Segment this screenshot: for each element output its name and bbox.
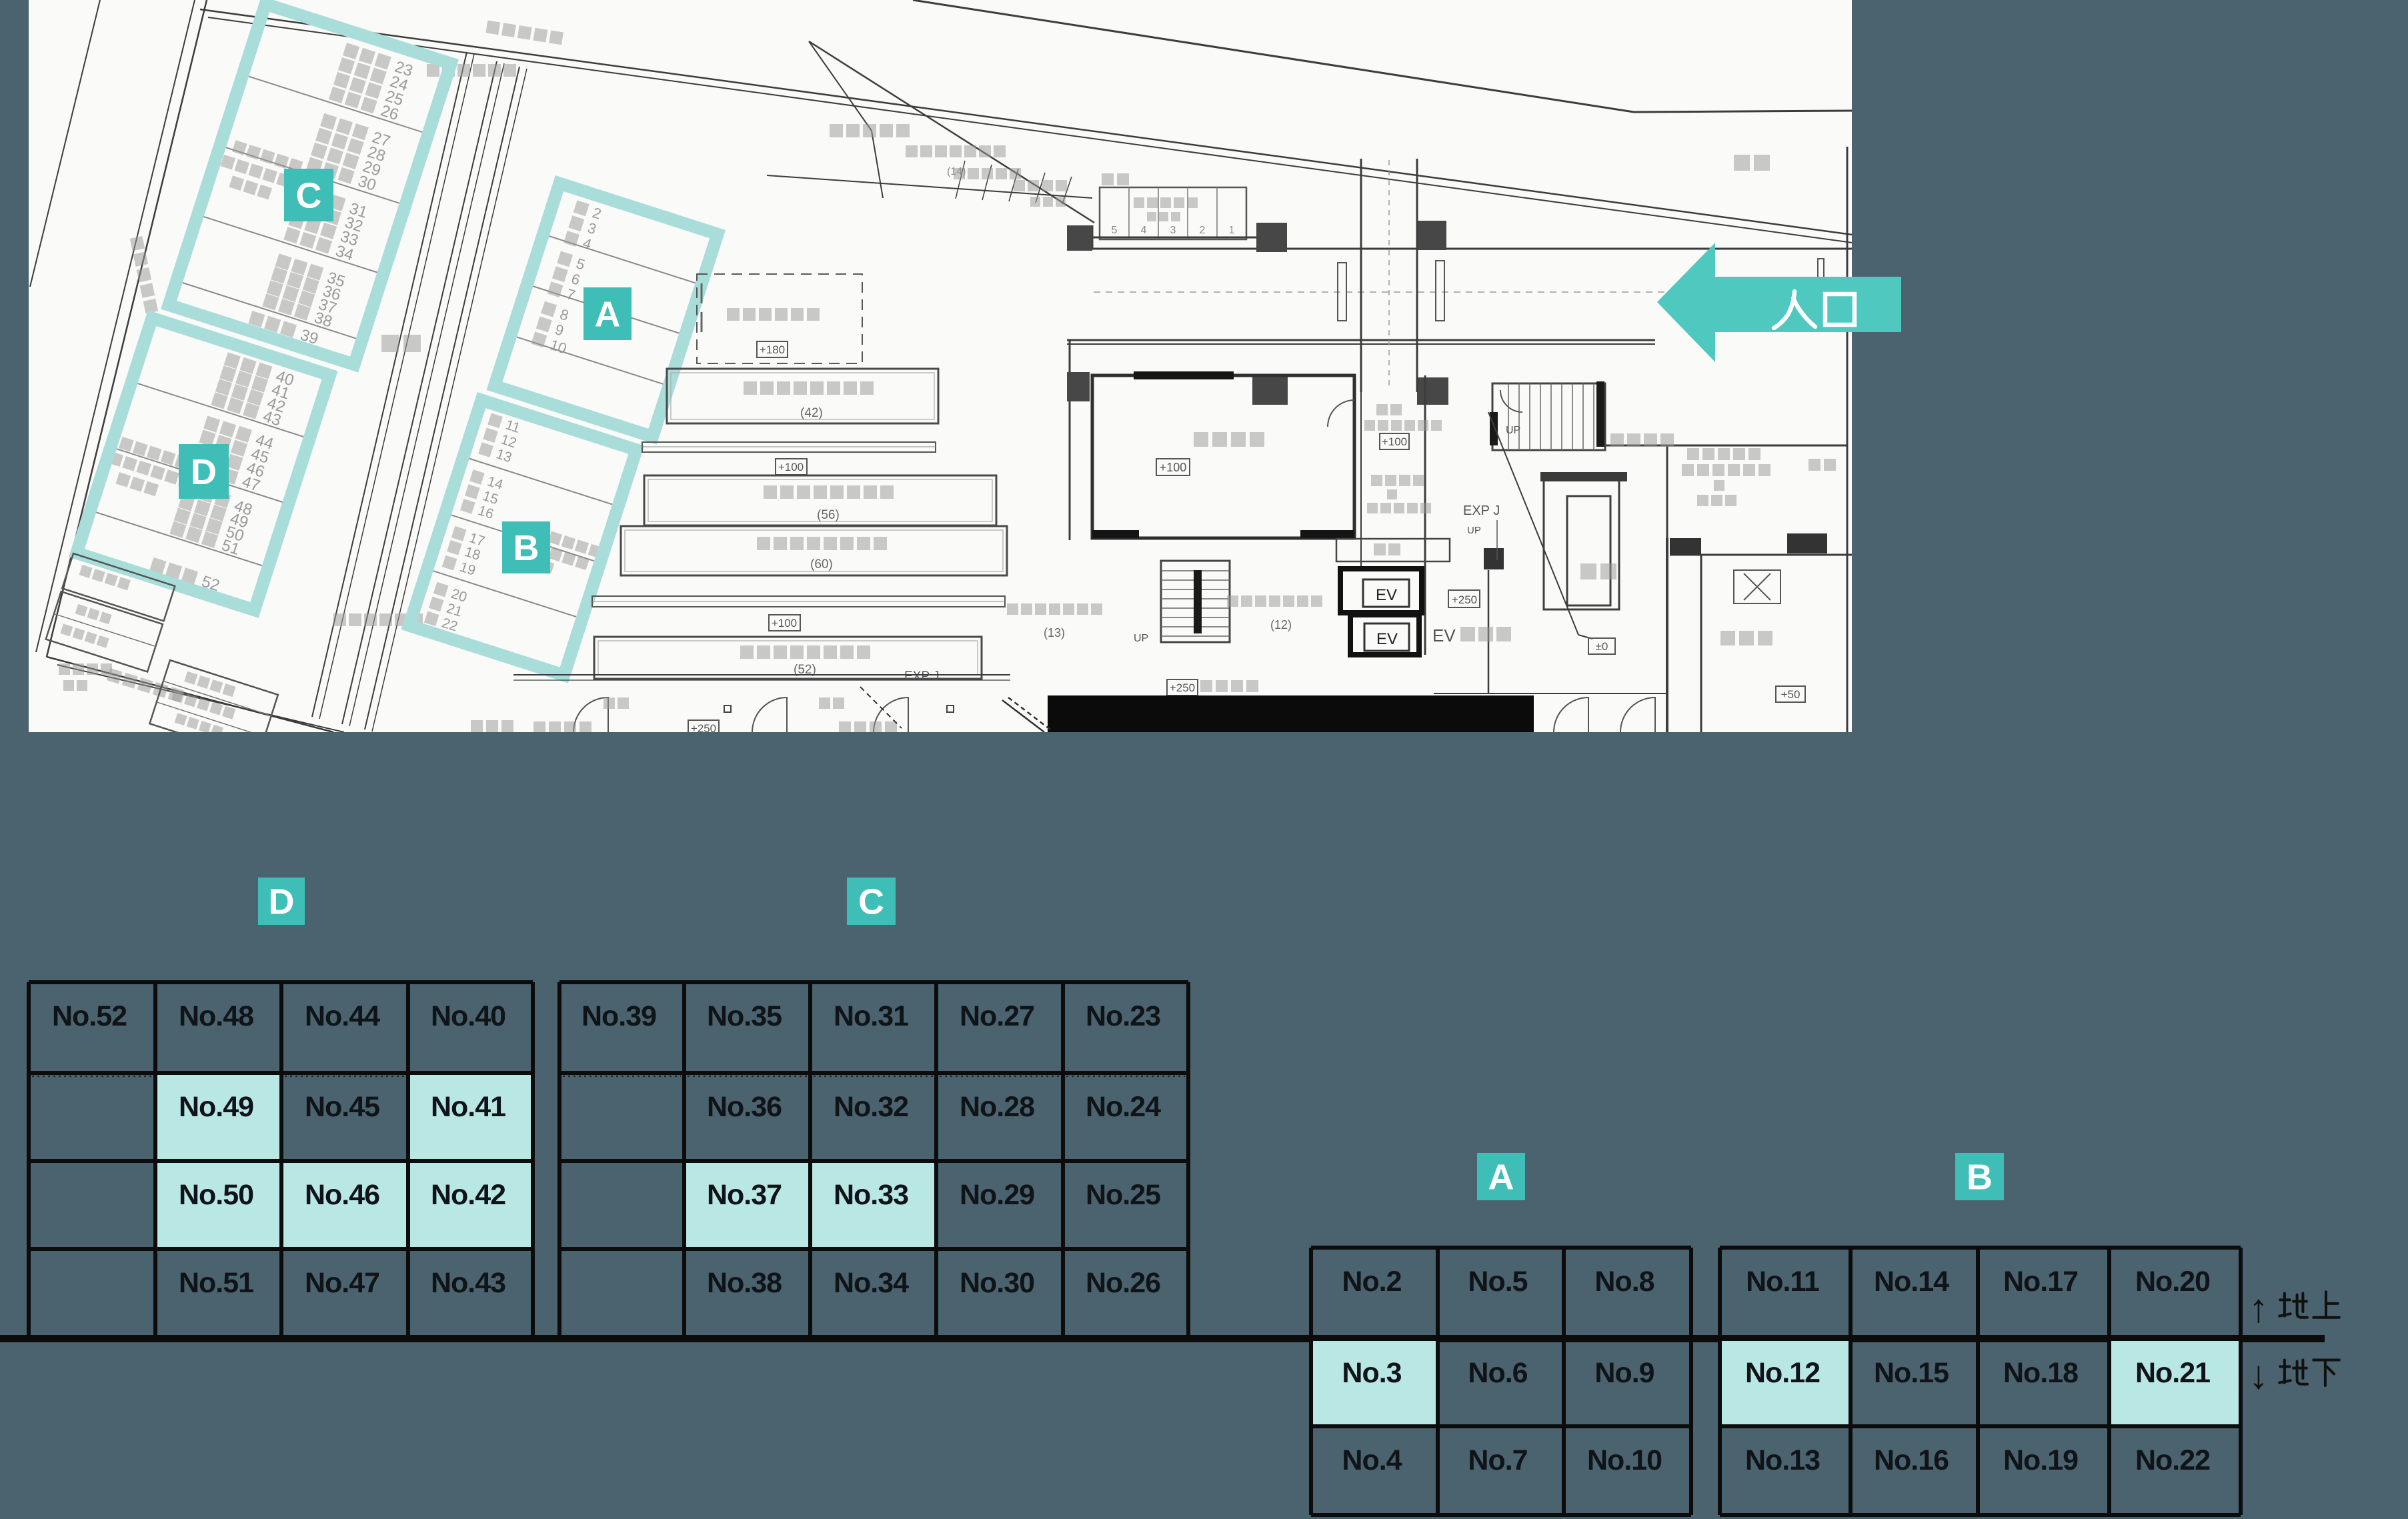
svg-text:(56): (56) xyxy=(817,508,840,522)
svg-text:±0: ±0 xyxy=(1596,640,1608,653)
svg-text:+100: +100 xyxy=(772,617,797,629)
svg-text:No.3: No.3 xyxy=(1342,1357,1401,1389)
svg-text:↓: ↓ xyxy=(2249,1352,2269,1397)
svg-text:+180: +180 xyxy=(760,343,785,356)
svg-text:No.19: No.19 xyxy=(2003,1444,2078,1476)
svg-text:+100: +100 xyxy=(1382,435,1407,448)
svg-text:(13): (13) xyxy=(1044,626,1065,639)
svg-text:No.26: No.26 xyxy=(1086,1267,1160,1299)
svg-text:C: C xyxy=(858,882,884,922)
svg-text:+250: +250 xyxy=(1170,681,1195,694)
svg-text:EV: EV xyxy=(1376,630,1398,648)
svg-text:No.4: No.4 xyxy=(1342,1444,1402,1476)
svg-text:No.36: No.36 xyxy=(707,1091,782,1123)
svg-text:No.2: No.2 xyxy=(1342,1266,1401,1298)
svg-text:No.42: No.42 xyxy=(431,1179,505,1211)
svg-text:UP: UP xyxy=(1467,525,1481,536)
svg-text:No.25: No.25 xyxy=(1086,1179,1160,1211)
svg-text:1: 1 xyxy=(1229,225,1235,236)
svg-text:No.45: No.45 xyxy=(305,1091,379,1123)
svg-text:No.18: No.18 xyxy=(2003,1357,2078,1389)
svg-text:No.12: No.12 xyxy=(1745,1357,1820,1389)
svg-text:No.15: No.15 xyxy=(1874,1357,1949,1389)
svg-text:+100: +100 xyxy=(1160,461,1187,474)
svg-text:(60): (60) xyxy=(810,557,833,571)
svg-text:No.44: No.44 xyxy=(305,1000,380,1032)
svg-text:No.7: No.7 xyxy=(1468,1444,1527,1476)
svg-text:(12): (12) xyxy=(1270,618,1292,631)
svg-text:No.39: No.39 xyxy=(581,1000,656,1032)
svg-text:No.30: No.30 xyxy=(960,1267,1034,1299)
svg-text:No.32: No.32 xyxy=(834,1091,908,1123)
svg-text:No.13: No.13 xyxy=(1745,1444,1820,1476)
svg-text:No.31: No.31 xyxy=(834,1000,908,1032)
svg-text:No.24: No.24 xyxy=(1086,1091,1161,1123)
svg-text:No.34: No.34 xyxy=(834,1267,909,1299)
svg-text:+100: +100 xyxy=(778,461,804,473)
svg-text:EXP J: EXP J xyxy=(904,669,939,683)
svg-text:EV: EV xyxy=(1432,625,1456,645)
svg-text:No.33: No.33 xyxy=(834,1179,908,1211)
svg-text:4: 4 xyxy=(1141,225,1147,236)
svg-text:UP: UP xyxy=(1134,633,1148,644)
svg-text:No.11: No.11 xyxy=(1746,1266,1819,1298)
svg-text:No.47: No.47 xyxy=(305,1267,379,1299)
svg-text:No.37: No.37 xyxy=(707,1179,782,1211)
svg-text:↑: ↑ xyxy=(2249,1286,2269,1330)
svg-text:No.28: No.28 xyxy=(960,1091,1034,1123)
svg-text:No.35: No.35 xyxy=(707,1000,782,1032)
svg-text:B: B xyxy=(513,528,539,568)
svg-text:No.14: No.14 xyxy=(1874,1266,1949,1298)
svg-text:No.5: No.5 xyxy=(1468,1266,1527,1298)
svg-text:No.46: No.46 xyxy=(305,1179,379,1211)
svg-text:5: 5 xyxy=(1112,225,1118,236)
svg-text:No.38: No.38 xyxy=(707,1267,782,1299)
svg-text:No.50: No.50 xyxy=(179,1179,253,1211)
svg-text:No.10: No.10 xyxy=(1587,1444,1662,1476)
svg-text:No.20: No.20 xyxy=(2135,1266,2210,1298)
svg-text:No.9: No.9 xyxy=(1594,1357,1654,1389)
svg-text:C: C xyxy=(296,176,322,216)
svg-text:No.21: No.21 xyxy=(2135,1357,2210,1389)
svg-text:No.41: No.41 xyxy=(431,1091,505,1123)
svg-text:No.6: No.6 xyxy=(1468,1357,1527,1389)
svg-text:A: A xyxy=(595,295,621,335)
svg-text:2: 2 xyxy=(1200,225,1206,236)
svg-text:EV: EV xyxy=(1376,586,1397,604)
svg-text:No.16: No.16 xyxy=(1874,1444,1949,1476)
svg-text:EXP J: EXP J xyxy=(1463,503,1500,518)
svg-text:No.48: No.48 xyxy=(179,1000,253,1032)
svg-text:B: B xyxy=(1967,1158,1993,1198)
svg-text:D: D xyxy=(191,452,217,492)
svg-text:D: D xyxy=(269,882,295,922)
svg-text:No.49: No.49 xyxy=(179,1091,253,1123)
svg-text:No.29: No.29 xyxy=(960,1179,1034,1211)
svg-text:No.27: No.27 xyxy=(960,1000,1034,1032)
svg-text:No.22: No.22 xyxy=(2135,1444,2210,1476)
svg-text:+250: +250 xyxy=(1452,593,1477,606)
svg-text:A: A xyxy=(1488,1158,1514,1198)
svg-text:(42): (42) xyxy=(800,406,823,420)
svg-text:+50: +50 xyxy=(1781,688,1800,701)
svg-text:No.17: No.17 xyxy=(2003,1266,2078,1298)
svg-text:UP: UP xyxy=(1506,425,1520,436)
svg-text:No.52: No.52 xyxy=(52,1000,127,1032)
svg-text:No.23: No.23 xyxy=(1086,1000,1160,1032)
svg-text:No.51: No.51 xyxy=(179,1267,253,1299)
svg-text:3: 3 xyxy=(1170,225,1176,236)
svg-text:No.8: No.8 xyxy=(1594,1266,1654,1298)
svg-text:No.40: No.40 xyxy=(431,1000,505,1032)
svg-text:No.43: No.43 xyxy=(431,1267,505,1299)
